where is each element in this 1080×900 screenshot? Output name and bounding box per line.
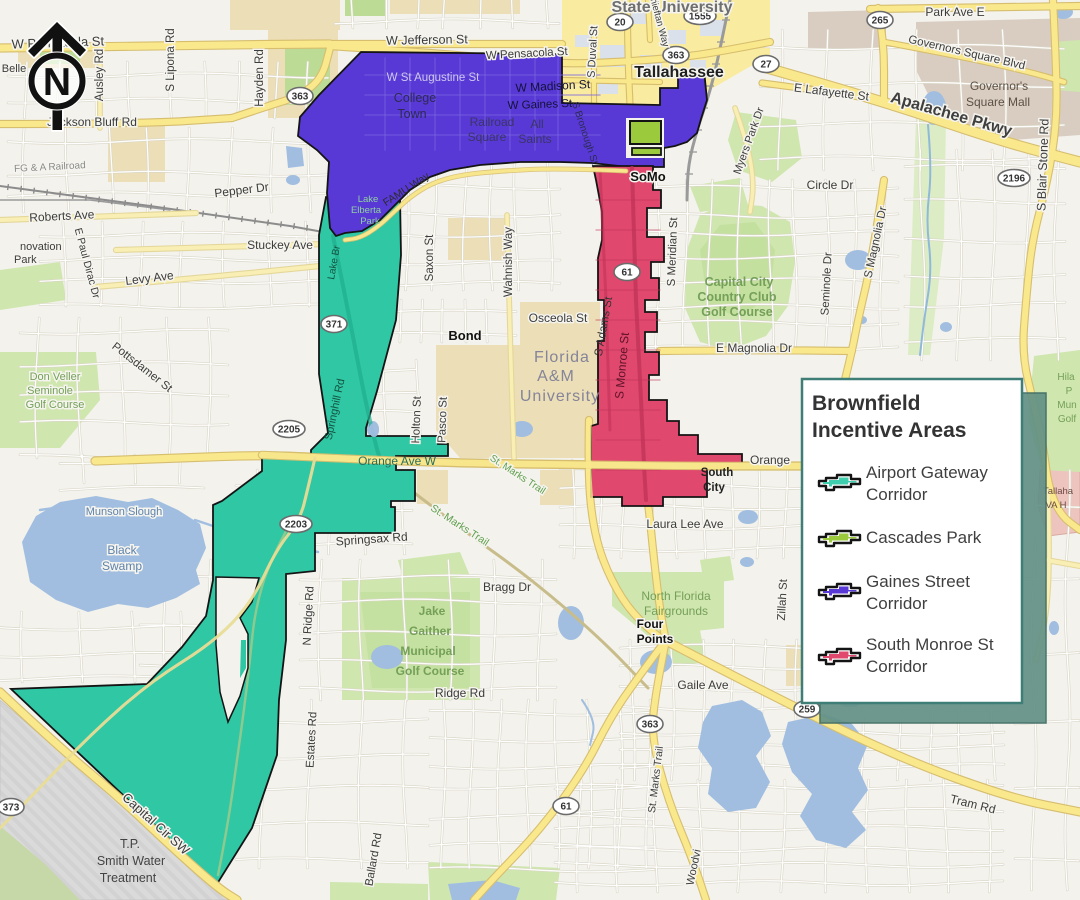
svg-text:SoMo: SoMo xyxy=(630,169,665,184)
svg-text:363: 363 xyxy=(292,92,309,103)
svg-text:Golf: Golf xyxy=(1058,414,1077,425)
svg-text:Municipal: Municipal xyxy=(400,644,455,658)
svg-text:2196: 2196 xyxy=(1003,174,1026,185)
svg-text:VA H: VA H xyxy=(1046,500,1067,511)
svg-text:2203: 2203 xyxy=(285,520,308,531)
svg-text:Corridor: Corridor xyxy=(866,594,928,613)
svg-text:Zillah St: Zillah St xyxy=(776,578,790,621)
svg-text:Points: Points xyxy=(637,632,674,646)
svg-text:Lake: Lake xyxy=(358,194,379,205)
svg-text:P: P xyxy=(1066,386,1073,397)
svg-text:novation: novation xyxy=(20,241,62,253)
svg-text:Corridor: Corridor xyxy=(866,485,928,504)
svg-text:Munson Slough: Munson Slough xyxy=(86,506,162,518)
svg-text:265: 265 xyxy=(872,16,889,27)
svg-text:Town: Town xyxy=(397,107,426,121)
svg-text:Country Club: Country Club xyxy=(697,290,777,304)
svg-text:Park Ave E: Park Ave E xyxy=(925,5,984,19)
svg-text:Stuckey Ave: Stuckey Ave xyxy=(247,238,313,252)
svg-text:363: 363 xyxy=(668,51,685,62)
svg-text:South Monroe St: South Monroe St xyxy=(866,635,994,654)
svg-text:South: South xyxy=(701,467,734,479)
svg-text:Seminole: Seminole xyxy=(27,385,73,397)
svg-text:Hayden Rd: Hayden Rd xyxy=(254,49,266,107)
svg-text:Elberta: Elberta xyxy=(351,205,382,216)
svg-text:371: 371 xyxy=(326,320,343,331)
svg-text:E Magnolia Dr: E Magnolia Dr xyxy=(716,341,792,355)
svg-text:Belle: Belle xyxy=(2,63,26,75)
svg-text:Orange Ave W: Orange Ave W xyxy=(358,454,436,468)
svg-text:Brownfield: Brownfield xyxy=(812,392,921,415)
svg-text:Bond: Bond xyxy=(448,328,481,343)
svg-text:W Jefferson St: W Jefferson St xyxy=(386,32,469,47)
svg-text:61: 61 xyxy=(560,802,572,813)
svg-text:Smith Water: Smith Water xyxy=(97,854,165,868)
svg-text:Florida: Florida xyxy=(534,349,590,366)
svg-text:Cascades Park: Cascades Park xyxy=(866,528,982,547)
svg-text:W St Augustine St: W St Augustine St xyxy=(387,72,480,84)
svg-text:Incentive Areas: Incentive Areas xyxy=(812,419,966,442)
svg-text:N: N xyxy=(43,61,71,104)
svg-text:Square: Square xyxy=(468,130,507,144)
svg-text:Park: Park xyxy=(360,216,380,227)
svg-text:373: 373 xyxy=(3,803,20,814)
svg-text:W Gaines St: W Gaines St xyxy=(507,98,573,112)
svg-text:Jake: Jake xyxy=(419,604,446,618)
svg-text:Laura Lee Ave: Laura Lee Ave xyxy=(646,517,724,531)
svg-text:College: College xyxy=(394,91,436,105)
svg-text:Gaile Ave: Gaile Ave xyxy=(677,678,728,692)
svg-text:Ridge Rd: Ridge Rd xyxy=(435,686,485,700)
svg-text:T.P.: T.P. xyxy=(120,837,140,851)
svg-text:North Florida: North Florida xyxy=(641,589,711,603)
svg-text:Black: Black xyxy=(107,543,137,557)
svg-text:259: 259 xyxy=(799,705,816,716)
svg-text:Fairgrounds: Fairgrounds xyxy=(644,604,708,618)
svg-text:61: 61 xyxy=(621,268,633,279)
svg-text:Square Mall: Square Mall xyxy=(966,95,1030,109)
svg-text:State University: State University xyxy=(612,0,733,16)
svg-text:Wahnish Way: Wahnish Way xyxy=(503,227,515,297)
svg-text:Circle Dr: Circle Dr xyxy=(807,178,854,192)
svg-text:Holton St: Holton St xyxy=(410,395,424,443)
svg-text:Swamp: Swamp xyxy=(102,559,142,573)
svg-text:Golf Course: Golf Course xyxy=(701,305,773,319)
svg-text:Ausley Rd: Ausley Rd xyxy=(94,49,106,101)
svg-text:Mun: Mun xyxy=(1057,400,1076,411)
svg-text:27: 27 xyxy=(760,60,772,71)
svg-text:A&M: A&M xyxy=(537,368,575,385)
svg-text:S Lipona Rd: S Lipona Rd xyxy=(165,28,177,91)
svg-text:All: All xyxy=(530,117,543,131)
svg-text:2205: 2205 xyxy=(278,425,301,436)
svg-text:Gaines Street: Gaines Street xyxy=(866,572,970,591)
svg-text:Airport Gateway: Airport Gateway xyxy=(866,463,988,482)
svg-text:20: 20 xyxy=(614,18,626,29)
svg-text:Hila: Hila xyxy=(1057,372,1075,383)
svg-text:Golf Course: Golf Course xyxy=(396,664,465,678)
svg-text:Pasco St: Pasco St xyxy=(436,396,450,443)
svg-text:Governor's: Governor's xyxy=(970,79,1028,93)
svg-text:Bragg Dr: Bragg Dr xyxy=(483,580,531,594)
svg-text:Golf Course: Golf Course xyxy=(26,399,85,411)
svg-text:Tallaha: Tallaha xyxy=(1043,486,1074,497)
svg-text:Treatment: Treatment xyxy=(100,871,157,885)
svg-text:Corridor: Corridor xyxy=(866,657,928,676)
svg-text:Tallahassee: Tallahassee xyxy=(634,64,724,81)
svg-text:Saints: Saints xyxy=(518,132,551,146)
svg-text:Capital City: Capital City xyxy=(705,275,774,289)
svg-text:University: University xyxy=(520,388,600,405)
svg-text:S Meridian St: S Meridian St xyxy=(666,216,680,286)
svg-text:Park: Park xyxy=(14,254,37,266)
svg-text:Osceola St: Osceola St xyxy=(529,311,588,325)
svg-text:Gaither: Gaither xyxy=(409,624,451,638)
svg-text:Railroad: Railroad xyxy=(470,115,515,129)
svg-text:363: 363 xyxy=(642,720,659,731)
svg-text:City: City xyxy=(703,482,725,494)
svg-text:Orange: Orange xyxy=(750,453,790,467)
svg-text:Four: Four xyxy=(637,617,664,631)
svg-text:Don Veller: Don Veller xyxy=(30,371,81,383)
svg-text:Saxon St: Saxon St xyxy=(424,234,436,281)
